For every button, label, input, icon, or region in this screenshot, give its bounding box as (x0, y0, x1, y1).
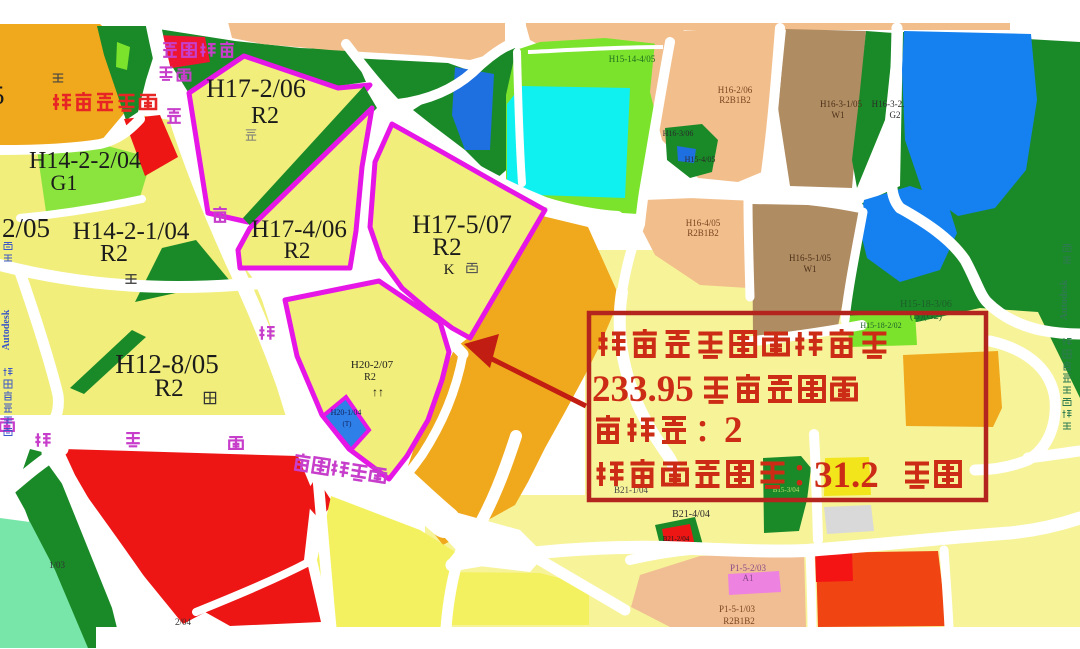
svg-text:H15-18-2/02: H15-18-2/02 (860, 321, 901, 330)
svg-text:R2: R2 (364, 372, 376, 383)
svg-text:2/04: 2/04 (175, 617, 192, 627)
svg-text:H16-3/06: H16-3/06 (663, 129, 694, 138)
svg-text:R2B1B2: R2B1B2 (719, 95, 751, 105)
svg-text:233.95: 233.95 (592, 369, 694, 410)
svg-text:H16-5-1/05: H16-5-1/05 (789, 253, 831, 263)
svg-text:5: 5 (0, 81, 5, 110)
svg-text:H15-18-3/06: H15-18-3/06 (900, 299, 952, 310)
svg-text:H16-3-1/05: H16-3-1/05 (820, 99, 862, 109)
svg-text:R2: R2 (251, 103, 279, 129)
svg-text:：: ： (695, 415, 725, 448)
svg-text:R2B1B2: R2B1B2 (723, 616, 755, 626)
svg-text:H16-4/05: H16-4/05 (686, 218, 721, 228)
svg-text:H16-2/06: H16-2/06 (718, 85, 753, 95)
svg-text:31.2: 31.2 (814, 455, 879, 496)
svg-text:↑↑: ↑↑ (372, 385, 384, 399)
svg-text:R2: R2 (100, 241, 128, 267)
svg-text:R2: R2 (432, 234, 461, 261)
svg-text:Autodesk: Autodesk (1059, 279, 1070, 320)
svg-text:W1: W1 (832, 110, 845, 120)
svg-text:R2B1B2: R2B1B2 (687, 228, 719, 238)
svg-text:G2: G2 (890, 110, 901, 120)
svg-text:R2: R2 (154, 375, 183, 402)
svg-text:A1: A1 (743, 573, 754, 583)
svg-text:H14-2-1/04: H14-2-1/04 (73, 218, 190, 245)
svg-text:R2: R2 (284, 238, 311, 263)
svg-text:H17-5/07: H17-5/07 (412, 210, 512, 239)
svg-text:1/03: 1/03 (49, 560, 66, 570)
svg-text:H15-14-4/05: H15-14-4/05 (609, 54, 656, 64)
svg-text:K: K (444, 262, 455, 278)
svg-text:H15-4/05: H15-4/05 (685, 155, 716, 164)
svg-text:G1: G1 (51, 170, 78, 195)
svg-text:P1-5-2/03: P1-5-2/03 (730, 563, 767, 573)
svg-text:H20-2/07: H20-2/07 (351, 359, 394, 371)
svg-text:P1-5-1/03: P1-5-1/03 (719, 604, 756, 614)
svg-text:2/05: 2/05 (2, 213, 50, 243)
svg-text:(T): (T) (343, 420, 353, 428)
svg-text:H14-2-2/04: H14-2-2/04 (29, 148, 141, 174)
svg-text:Autodesk: Autodesk (1, 309, 12, 350)
svg-text:B21-2/04: B21-2/04 (663, 535, 690, 543)
svg-text:H20-1/04: H20-1/04 (331, 408, 362, 417)
svg-text:H16-3-2.: H16-3-2. (872, 99, 905, 109)
svg-text:B21-4/04: B21-4/04 (672, 509, 710, 520)
svg-text:2: 2 (724, 410, 743, 451)
svg-text:H17-2/06: H17-2/06 (206, 74, 306, 103)
svg-text:W1: W1 (804, 264, 817, 274)
